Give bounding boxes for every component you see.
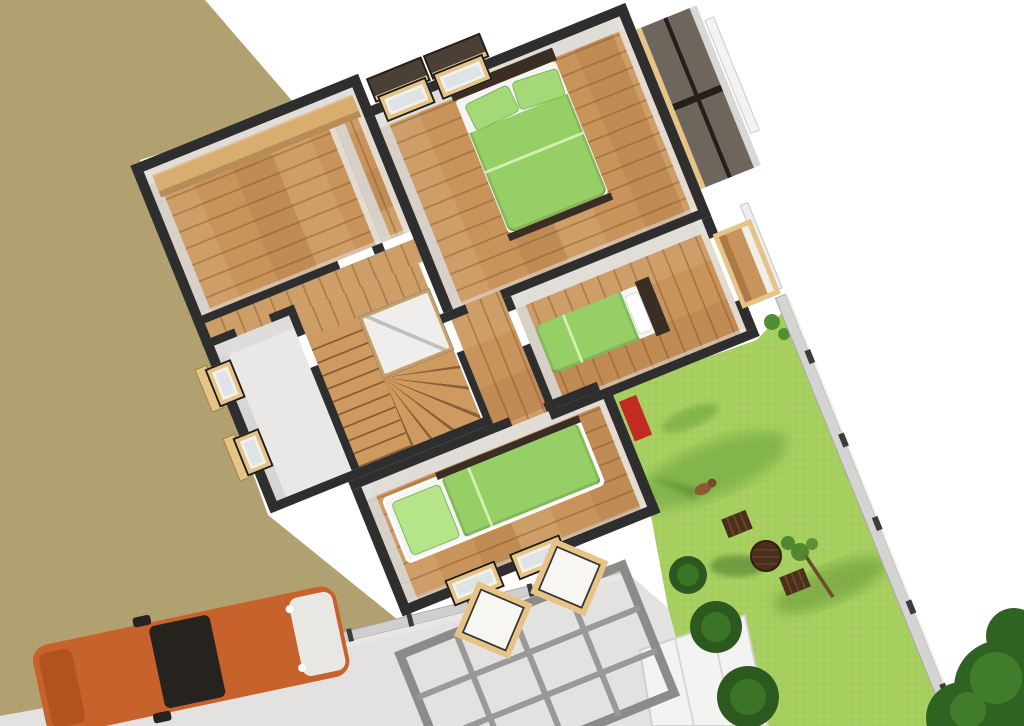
floorplan-scene [0, 0, 1024, 726]
corner-bushes [926, 608, 1024, 726]
